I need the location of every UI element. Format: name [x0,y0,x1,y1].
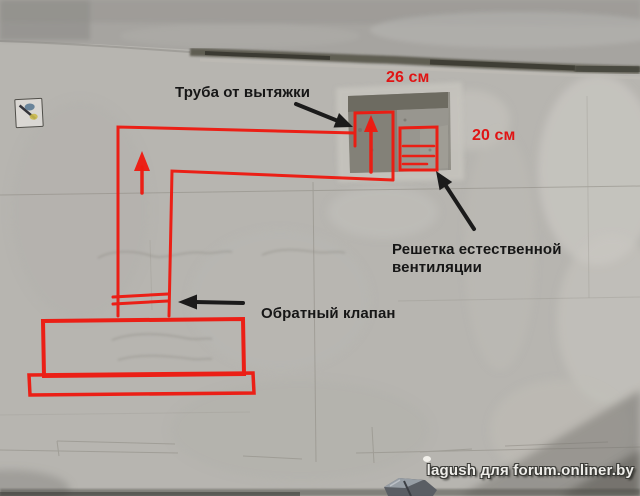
dimension-width-label: 26 см [386,69,429,86]
pipe-label: Труба от вытяжки [175,84,310,101]
grille-label-line2: вентиляции [392,259,482,276]
watermark-text: lagush для forum.onliner.by [427,462,634,479]
grille-label-line1: Решетка естественной [392,241,562,258]
dimension-height-label: 20 см [472,127,515,144]
annotated-wall-photo: Труба от вытяжки 26 см 20 см Решетка ест… [0,0,640,496]
wall-sticker [15,98,43,127]
valve-label: Обратный клапан [261,305,396,322]
pointer-valve-shaft [195,302,243,303]
